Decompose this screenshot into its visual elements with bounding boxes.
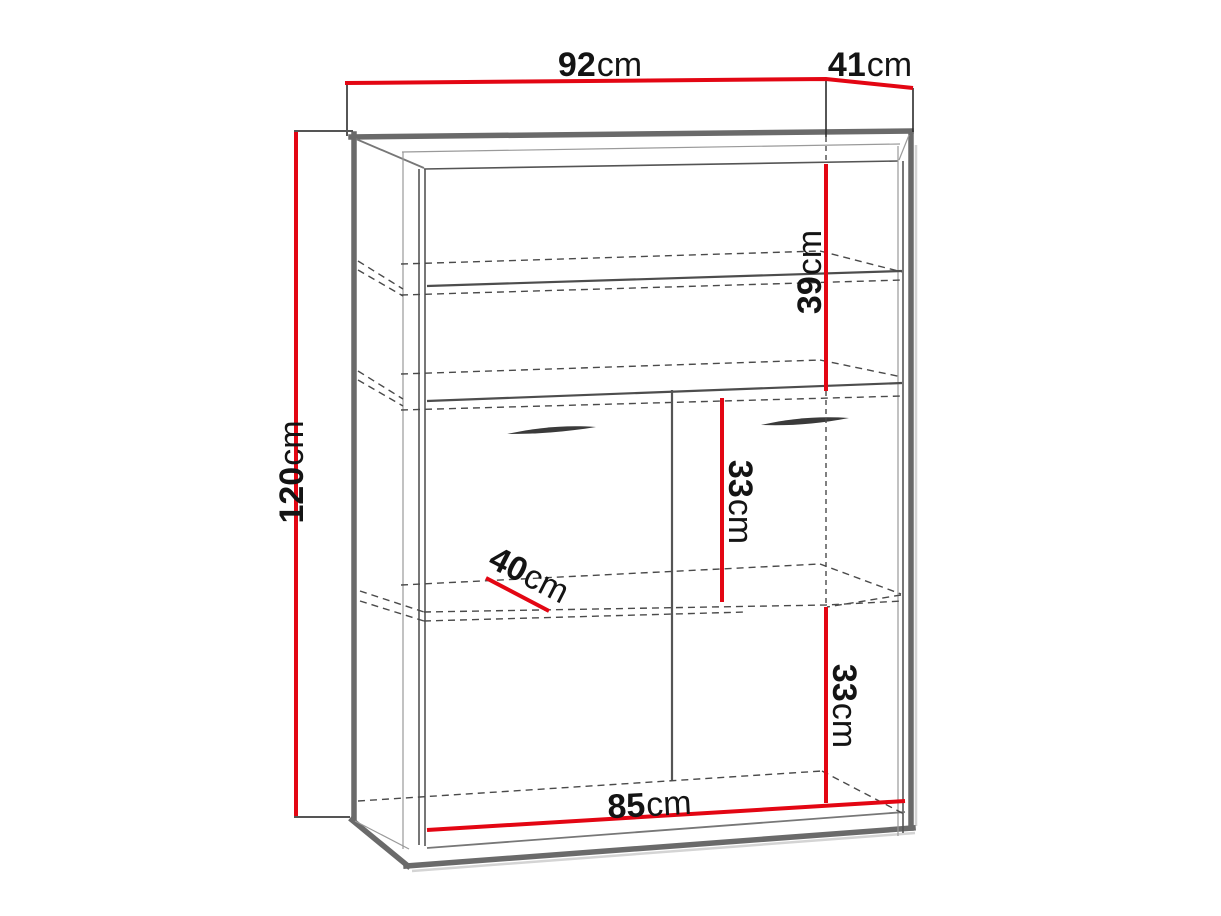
- shelf2-left-diagonal-a: [358, 371, 403, 399]
- shelf1-back-hidden-edge: [401, 251, 820, 264]
- mid-shelf-left-diagonal-a: [360, 591, 424, 612]
- shelf1-right-diagonal: [820, 251, 902, 272]
- cabinet-top-edge: [351, 131, 911, 137]
- bottom-board-right-diagonal: [822, 771, 904, 814]
- top-bevel-left: [356, 139, 424, 168]
- cabinet-plinth-left-slant: [352, 820, 408, 866]
- diagram-svg: 92cm 41cm 120cm 39cm 33cm 33cm 40cm 85cm: [0, 0, 1221, 916]
- shelf2-left-diagonal-b: [358, 380, 403, 406]
- bottom-shadow-line: [412, 833, 915, 871]
- top-bevel-right: [899, 135, 909, 160]
- cabinet-top-face: [347, 79, 913, 169]
- mid-shelf-left-diagonal-b: [360, 601, 424, 621]
- mid-shelf-right-diagonal: [820, 564, 901, 594]
- dim-label-upper-section: 39cm: [791, 230, 829, 314]
- cabinet-dimension-diagram: 92cm 41cm 120cm 39cm 33cm 33cm 40cm 85cm: [0, 0, 1221, 916]
- shelf1-left-diagonal-b: [358, 270, 403, 296]
- dim-label-width: 92cm: [558, 46, 642, 84]
- shelf2-right-diagonal: [820, 360, 902, 377]
- left-door-handle: [507, 426, 596, 434]
- dim-label-inner-width: 85cm: [606, 784, 692, 826]
- dim-label-lower-section: 33cm: [825, 664, 863, 748]
- shelf2-back-hidden-edge: [401, 360, 820, 374]
- shelf2-front-edge: [427, 383, 902, 401]
- cabinet-bottom-edge: [406, 828, 913, 866]
- cabinet-outline: [351, 131, 916, 871]
- door-section: [358, 390, 904, 814]
- dimension-lines: [294, 79, 913, 830]
- dim-label-height: 120cm: [273, 420, 311, 523]
- bottom-board-hidden-edge: [358, 771, 822, 801]
- mid-shelf-front-bottom-hidden: [424, 612, 746, 621]
- right-door-handle: [761, 417, 849, 425]
- shelf1-front-edge: [427, 271, 902, 286]
- mid-shelf-back-hidden-edge: [401, 564, 820, 585]
- mid-shelf-front-top-hidden: [424, 601, 903, 612]
- dim-label-middle-section: 33cm: [721, 460, 759, 544]
- shelf1-left-diagonal-a: [358, 261, 403, 289]
- dim-label-depth: 41cm: [828, 46, 912, 84]
- mid-shelf-right-wall-edge: [827, 595, 901, 607]
